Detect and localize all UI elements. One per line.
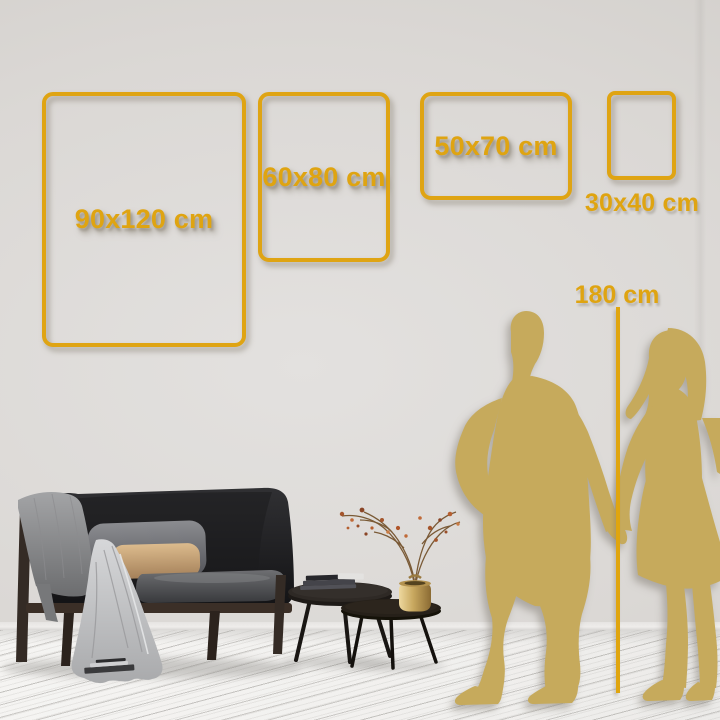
size-frame-60x80: 60x80 cm xyxy=(258,92,390,262)
woman-silhouette xyxy=(610,328,720,701)
sofa-rail xyxy=(26,603,292,613)
dark-sofa xyxy=(16,488,294,683)
size-frame-30x40-label: 30x40 cm xyxy=(584,189,700,218)
sofa-leg xyxy=(207,611,220,660)
man-left-leg xyxy=(475,556,523,695)
seat-sheen xyxy=(154,573,270,583)
size-frame-90x120-label: 90x120 cm xyxy=(75,204,213,235)
man-silhouette xyxy=(455,311,624,705)
height-reference-line xyxy=(616,307,620,693)
size-frame-90x120: 90x120 cm xyxy=(42,92,246,347)
couple-silhouettes xyxy=(440,300,720,720)
size-frame-30x40 xyxy=(607,91,676,180)
sofa-leg xyxy=(61,613,74,666)
woman-skirt xyxy=(637,478,720,589)
size-frame-60x80-label: 60x80 cm xyxy=(262,162,385,193)
size-frame-50x70: 50x70 cm xyxy=(420,92,572,200)
size-guide-scene: 180 cm 90x120 cm 60x80 cm 50x70 cm 30x40… xyxy=(0,0,720,720)
brass-vase xyxy=(399,576,431,612)
man-head xyxy=(511,311,544,382)
size-frame-50x70-label: 50x70 cm xyxy=(434,131,557,162)
furniture-scene xyxy=(0,470,470,720)
man-right-foot xyxy=(528,684,578,704)
woman-right-arm xyxy=(702,418,720,474)
table-books xyxy=(300,572,365,590)
woman-back-leg xyxy=(692,584,718,688)
man-right-leg xyxy=(535,556,590,692)
height-reference-label: 180 cm xyxy=(573,281,661,310)
woman-front-leg xyxy=(662,584,688,688)
table-shadow-2 xyxy=(346,661,446,671)
